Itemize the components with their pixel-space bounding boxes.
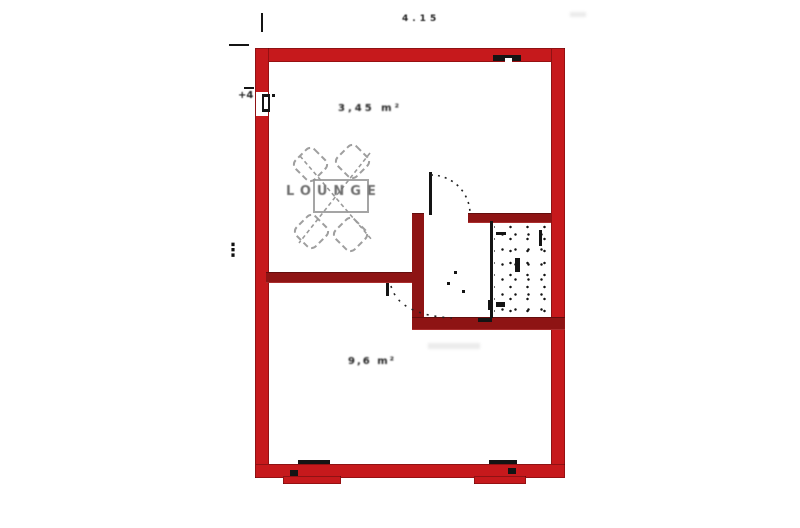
scan-artifact-smudge-2: [570, 12, 586, 17]
plan-overlay-svg: [0, 0, 800, 528]
stair-tread-mark-3: [539, 230, 542, 246]
interior-wall-horizontal: [266, 272, 414, 283]
dimension-tick-top: [261, 13, 263, 32]
window-left-frame-inner: [264, 97, 268, 109]
lower-room-dimension-label: 9,6 m²: [348, 356, 396, 367]
bottom-wall-sill-right: [474, 476, 526, 484]
chair-northeast: [332, 141, 373, 182]
top-dimension-label: 4.15: [402, 14, 440, 24]
bottom-wall-sill-left: [283, 476, 341, 484]
stair-tread-mark-2: [515, 258, 520, 272]
left-dimension-marks: ⋮: [224, 242, 242, 260]
dimension-tick-left: [229, 44, 249, 46]
door-swing-arc-upper: [431, 175, 470, 213]
stair-tread-mark-5: [496, 302, 505, 307]
level-marker-overbar: [244, 87, 254, 89]
window-left-dot: [272, 94, 275, 97]
scan-artifact-smudge-1: [428, 343, 480, 349]
door-hinge-lower: [386, 283, 389, 296]
floorplan-canvas: 4.15 3,45 m² LOUNGE 9,6 m² +4 ⋮: [0, 0, 800, 528]
bottom-wall-chip-left: [290, 470, 298, 476]
closet-dot-2: [447, 282, 450, 285]
chair-southwest: [291, 211, 332, 252]
door-leaf-upper: [429, 172, 432, 215]
chair-southeast: [330, 214, 371, 255]
stair-tread-mark-4: [488, 300, 492, 310]
closet-dot-3: [462, 290, 465, 293]
outer-wall-right: [551, 48, 565, 478]
upper-room-name-label: LOUNGE: [286, 184, 382, 199]
window-top-notch: [505, 58, 512, 62]
level-marker-label: +4: [238, 90, 253, 101]
closet-dot-1: [454, 271, 457, 274]
stair-tread-mark-6: [478, 318, 492, 322]
stair-tread-mark-1: [496, 232, 506, 235]
interior-wall-vertical: [412, 213, 424, 330]
closet-wall-top: [468, 213, 551, 223]
window-bottom-right: [489, 460, 517, 464]
bottom-wall-chip-right: [508, 468, 516, 474]
upper-room-dimension-label: 3,45 m²: [338, 103, 402, 114]
window-bottom-left: [298, 460, 330, 464]
